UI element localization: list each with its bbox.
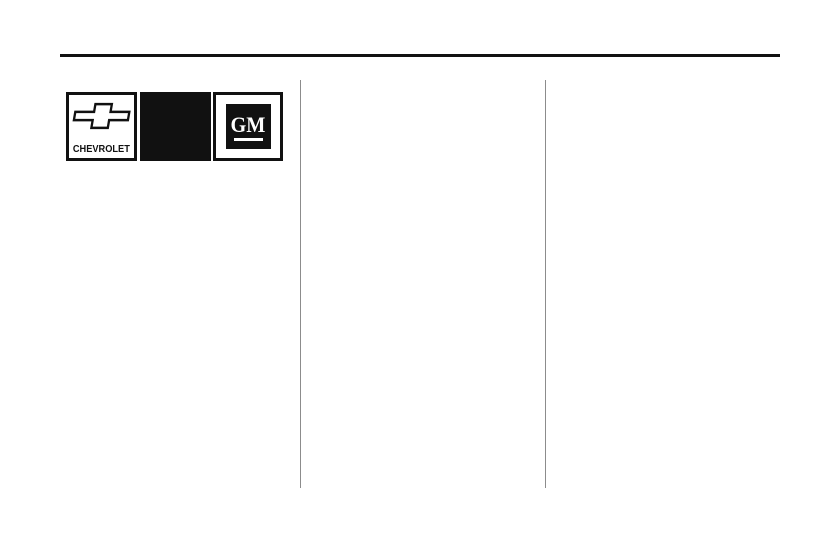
gm-monogram: GM [231, 115, 266, 135]
chevrolet-bowtie-icon [71, 100, 133, 132]
column-divider-right [545, 80, 546, 488]
chevrolet-wordmark: CHEVROLET [73, 144, 130, 154]
header-rule [60, 54, 780, 57]
gm-logo-icon: GM [226, 104, 271, 149]
chevrolet-logo-box: CHEVROLET [66, 92, 137, 161]
gm-logo-underline [234, 138, 263, 141]
gm-logo-box: GM [213, 92, 283, 161]
manual-cover-page: CHEVROLET GM [0, 0, 826, 553]
black-square-block [140, 92, 211, 161]
column-divider-left [300, 80, 301, 488]
